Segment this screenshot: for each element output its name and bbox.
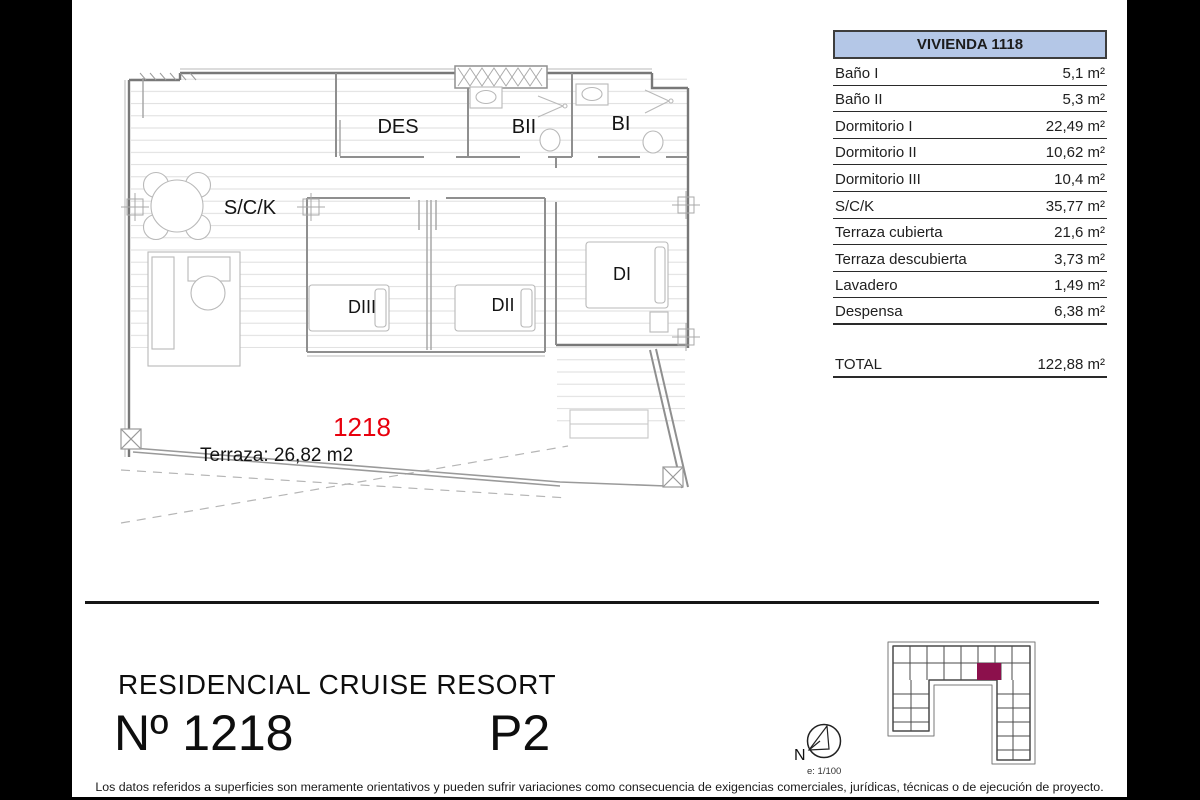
area-table-row: Terraza cubierta 21,6 m² <box>833 219 1107 246</box>
total-label: TOTAL <box>835 356 882 373</box>
area-table-row: Baño II 5,3 m² <box>833 86 1107 113</box>
room-label-bii: BII <box>512 116 536 138</box>
room-area: 10,62 m² <box>1046 144 1105 161</box>
room-name: Despensa <box>835 303 903 320</box>
room-name: Dormitorio III <box>835 171 921 188</box>
area-table-row: Lavadero 1,49 m² <box>833 272 1107 299</box>
area-table-row: Terraza descubierta 3,73 m² <box>833 245 1107 272</box>
compass-scale-label: e: 1/100 <box>807 766 841 777</box>
area-table-row: Dormitorio III 10,4 m² <box>833 165 1107 192</box>
room-name: Terraza cubierta <box>835 224 943 241</box>
room-area: 21,6 m² <box>1054 224 1105 241</box>
room-label-des: DES <box>377 116 418 138</box>
site-plan <box>885 636 1060 776</box>
area-table-row: Dormitorio II 10,62 m² <box>833 139 1107 166</box>
total-area: 122,88 m² <box>1037 356 1105 373</box>
compass-north-label: N <box>794 747 806 764</box>
area-table-row: Dormitorio I 22,49 m² <box>833 112 1107 139</box>
room-name: Dormitorio I <box>835 118 913 135</box>
room-label-di: DI <box>613 264 631 284</box>
room-name: Terraza descubierta <box>835 251 967 268</box>
area-table-title: VIVIENDA 1118 <box>833 30 1107 59</box>
disclaimer-text: Los datos referidos a superficies son me… <box>72 780 1127 794</box>
terrace-area-label: Terraza: 26,82 m2 <box>200 445 353 466</box>
room-area: 1,49 m² <box>1054 277 1105 294</box>
room-name: S/C/K <box>835 198 874 215</box>
title-block-divider <box>85 601 1099 604</box>
room-name: Lavadero <box>835 277 898 294</box>
room-area: 5,3 m² <box>1062 91 1105 108</box>
room-name: Dormitorio II <box>835 144 917 161</box>
floor-label: P2 <box>489 704 550 762</box>
room-area: 5,1 m² <box>1062 65 1105 82</box>
room-label-dii: DII <box>491 295 514 315</box>
room-area: 22,49 m² <box>1046 118 1105 135</box>
room-area: 6,38 m² <box>1054 303 1105 320</box>
highlighted-unit <box>977 663 1001 680</box>
room-label-bi: BI <box>612 113 631 135</box>
room-area: 10,4 m² <box>1054 171 1105 188</box>
project-name: RESIDENCIAL CRUISE RESORT <box>118 669 556 701</box>
unit-number-label: 1218 <box>333 412 391 442</box>
compass-icon: N e: 1/100 <box>790 712 862 782</box>
vent-shaft <box>455 66 547 88</box>
area-table-row: S/C/K 35,77 m² <box>833 192 1107 219</box>
floor-plan: DES BII BI S/C/K DIII DII DI 1218 Terraz… <box>110 55 710 547</box>
area-table-rows: Baño I 5,1 m² Baño II 5,3 m² Dormitorio … <box>833 59 1107 325</box>
area-table: VIVIENDA 1118 Baño I 5,1 m² Baño II 5,3 … <box>833 30 1107 378</box>
plan-sheet: DES BII BI S/C/K DIII DII DI 1218 Terraz… <box>72 0 1127 797</box>
room-area: 35,77 m² <box>1046 198 1105 215</box>
room-label-sck: S/C/K <box>224 197 277 219</box>
room-name: Baño I <box>835 65 878 82</box>
room-name: Baño II <box>835 91 883 108</box>
room-label-diii: DIII <box>348 297 376 317</box>
area-table-row: Despensa 6,38 m² <box>833 298 1107 325</box>
room-area: 3,73 m² <box>1054 251 1105 268</box>
area-table-total-row: TOTAL 122,88 m² <box>833 349 1107 378</box>
unit-number-title: Nº 1218 <box>114 704 294 762</box>
area-table-row: Baño I 5,1 m² <box>833 59 1107 86</box>
